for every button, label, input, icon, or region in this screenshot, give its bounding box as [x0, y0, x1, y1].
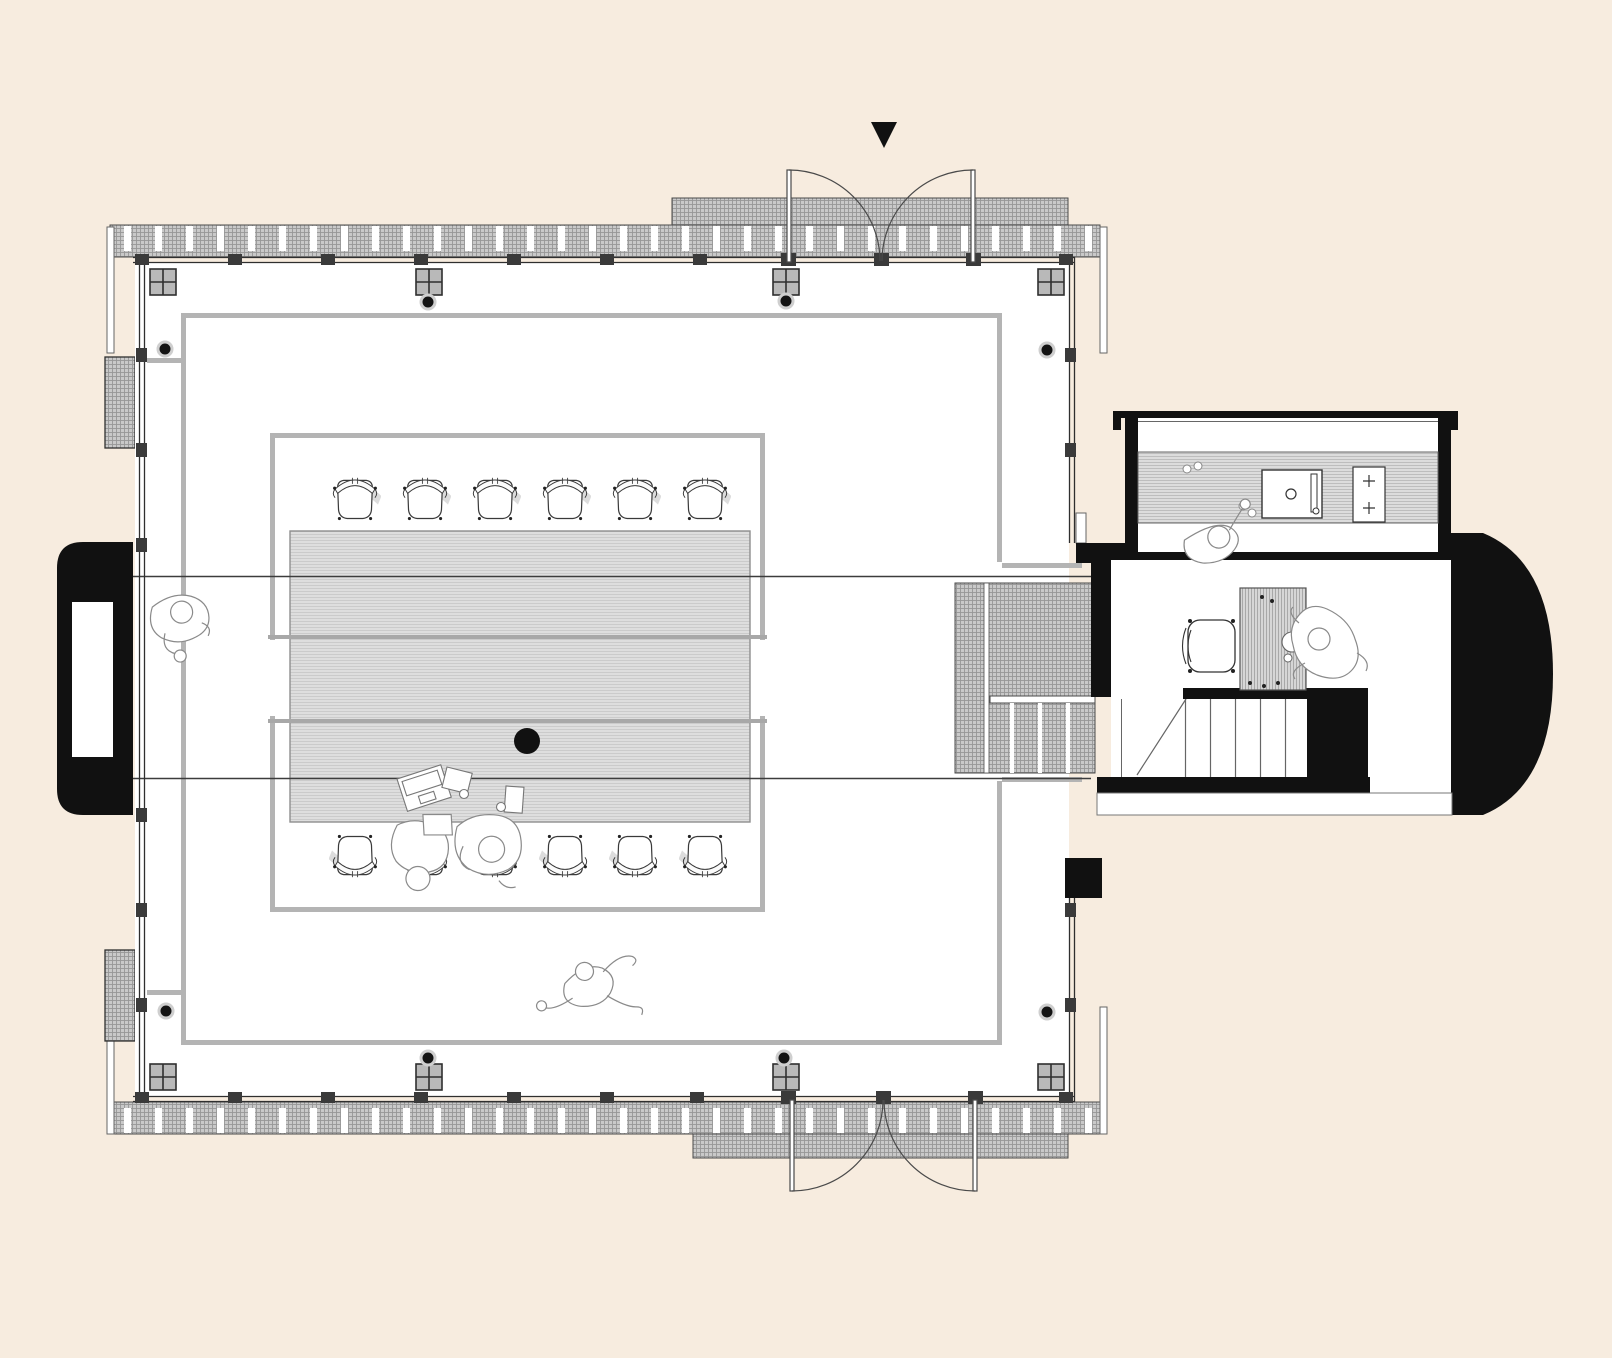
cooktop [1353, 467, 1385, 522]
column-square [773, 269, 799, 295]
column-square [1038, 269, 1064, 295]
column-square [1038, 1064, 1064, 1090]
cup [497, 803, 506, 812]
fireplace [57, 542, 133, 815]
floor-plan-drawing [0, 0, 1612, 1358]
column-square [773, 1064, 799, 1090]
south-threshold-strip [1097, 793, 1452, 815]
column-square [150, 1064, 176, 1090]
sink [1262, 470, 1322, 518]
south-entrance-pad [693, 1134, 1068, 1158]
column-square [416, 1064, 442, 1090]
fireplace-inset [72, 602, 113, 757]
table-center-dot [514, 728, 540, 754]
column-square [150, 269, 176, 295]
floor-plan-canvas [0, 0, 1612, 1358]
table-plank-line [268, 719, 767, 723]
paper [504, 786, 524, 813]
north-entrance-pad [672, 198, 1068, 225]
office-chair [1183, 619, 1236, 673]
west-eave-strip-top [107, 227, 114, 353]
east-eave-strip-bottom [1100, 1007, 1107, 1134]
north-deck-mullions [110, 226, 1100, 251]
column-square [416, 269, 442, 295]
south-deck-mullions [110, 1108, 1100, 1133]
table-plank-line [268, 635, 767, 639]
east-eave-strip-top [1100, 227, 1107, 353]
wall-notch [1076, 513, 1086, 543]
west-vent-top [105, 357, 135, 448]
kitchen [1113, 411, 1458, 560]
west-vent-bottom [105, 950, 135, 1041]
cup [460, 790, 469, 799]
